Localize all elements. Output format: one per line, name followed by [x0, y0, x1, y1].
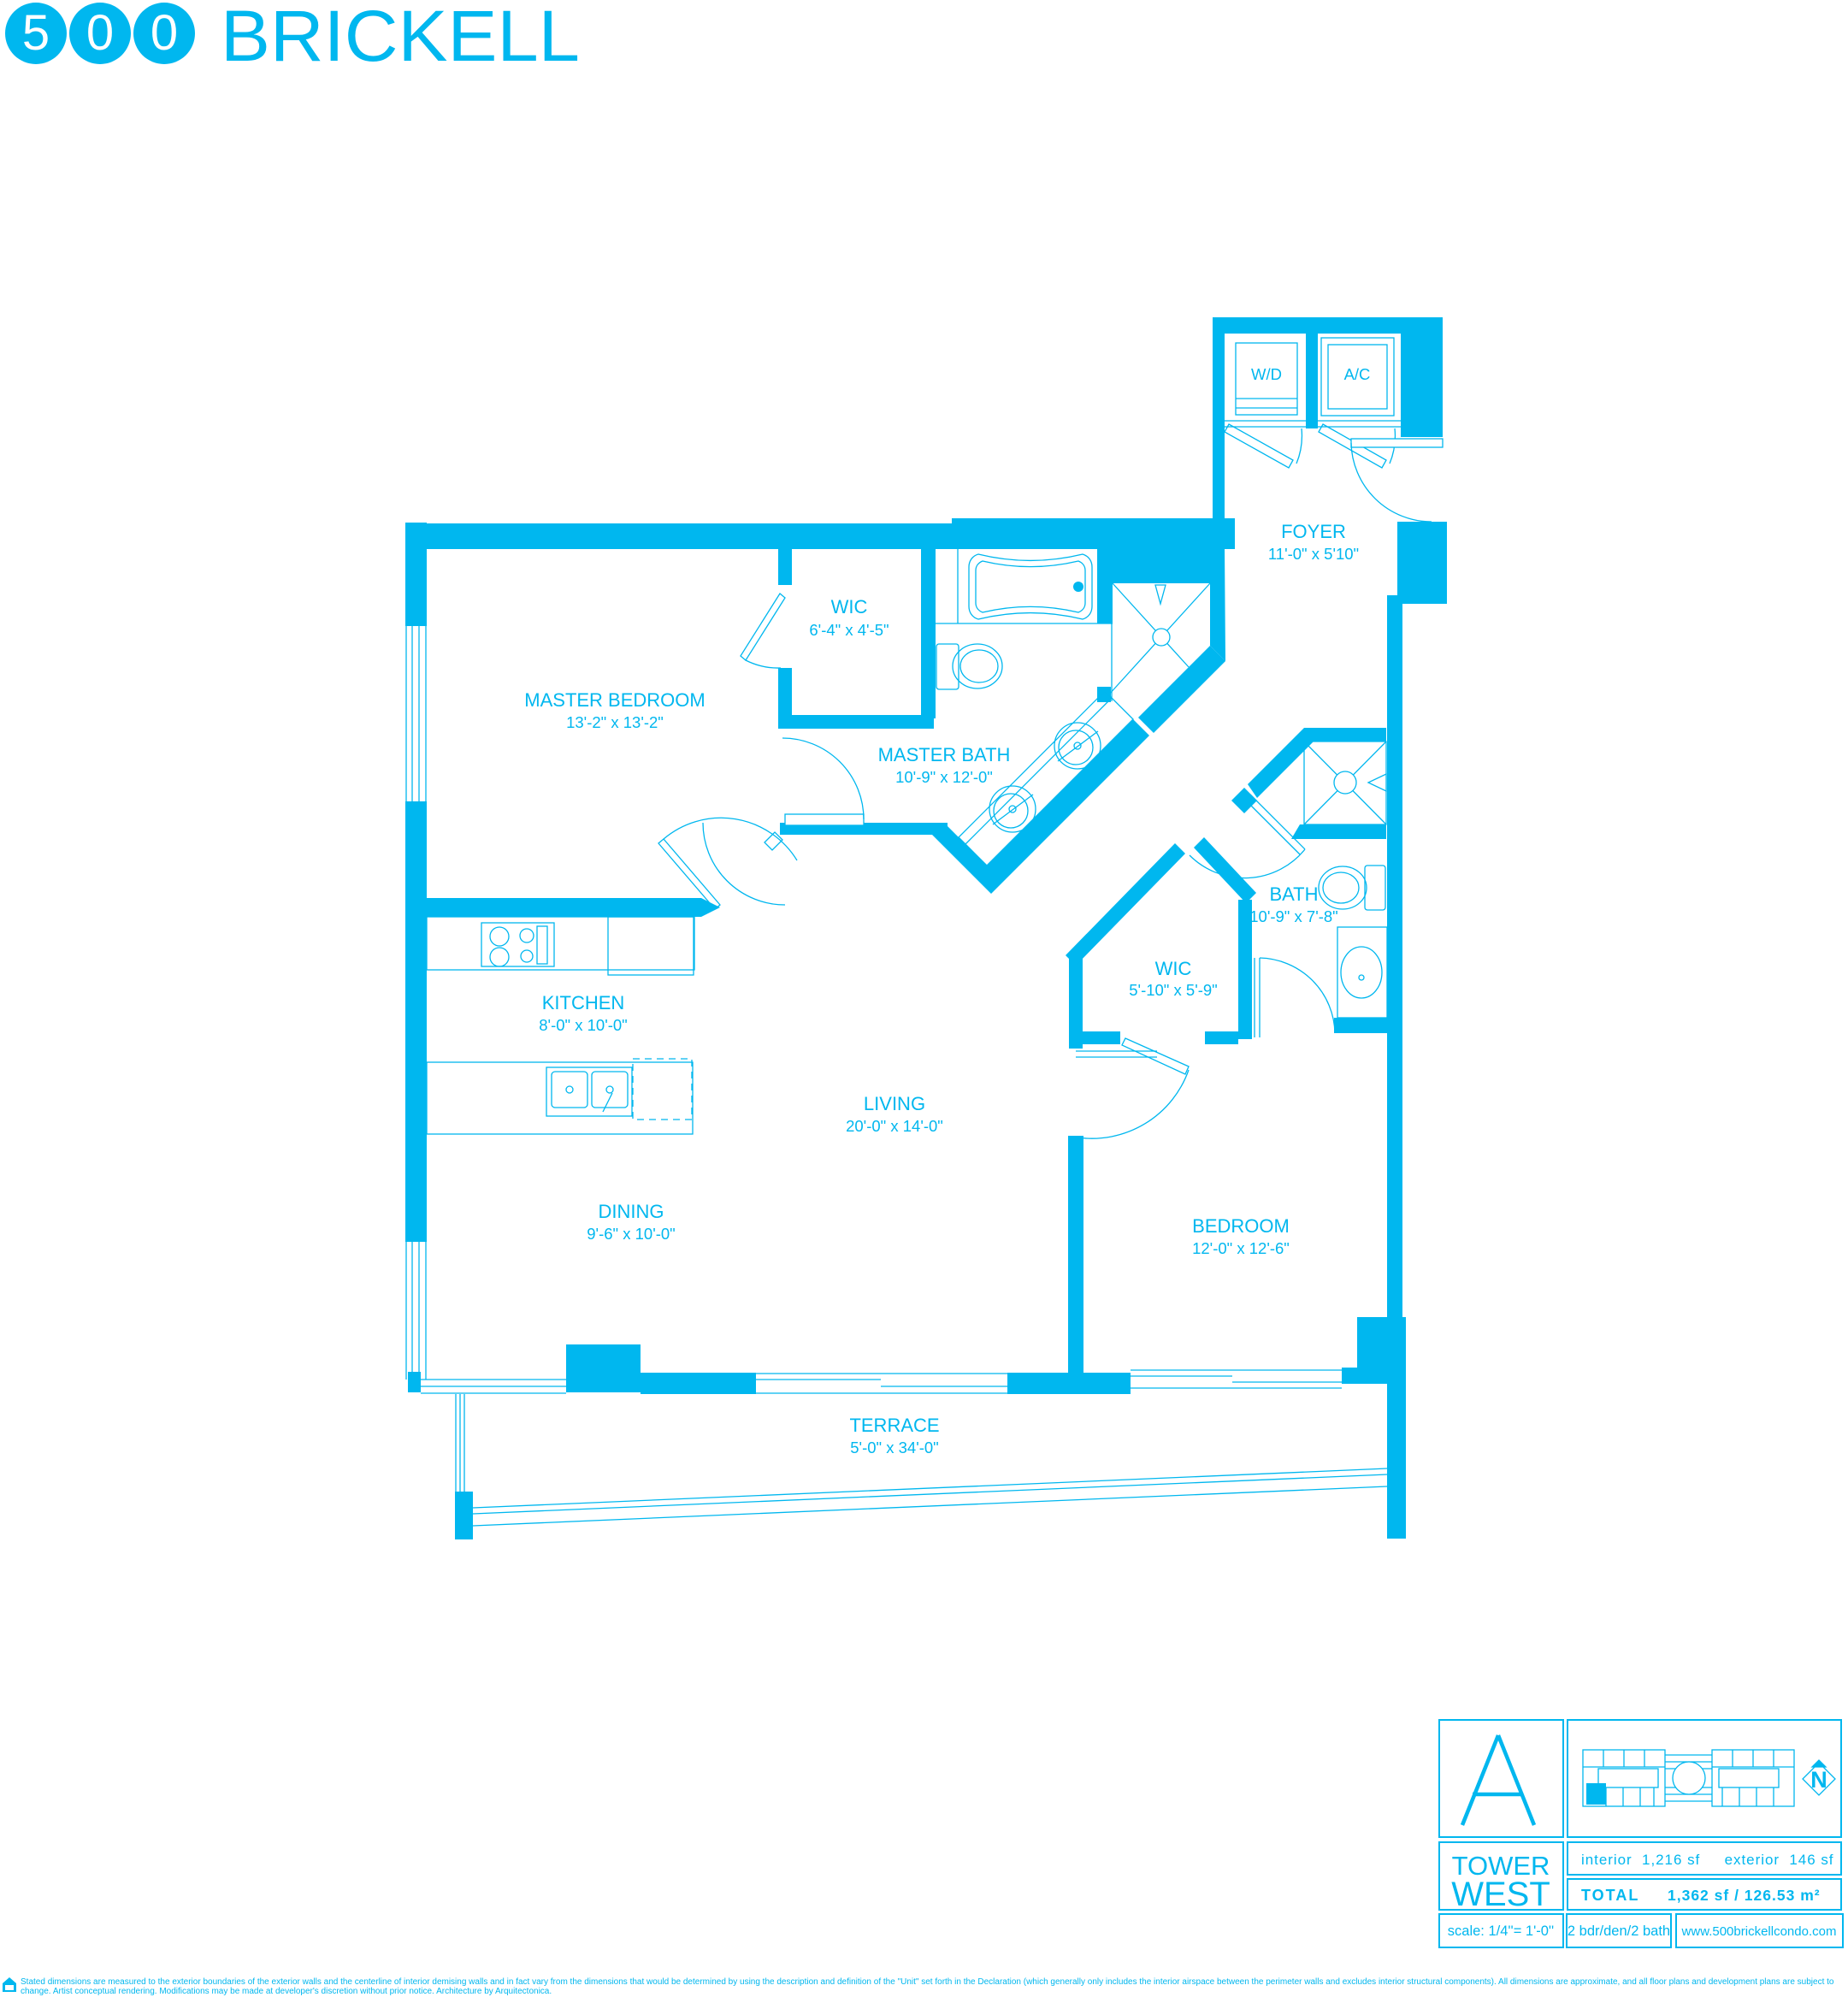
- svg-text:TERRACE: TERRACE: [849, 1415, 939, 1436]
- svg-text:A/C: A/C: [1344, 365, 1371, 383]
- svg-text:1,362 sf / 126.53 m²: 1,362 sf / 126.53 m²: [1668, 1887, 1821, 1904]
- svg-text:change. Artist conceptual rend: change. Artist conceptual rendering. Mod…: [21, 1987, 552, 1996]
- svg-text:MASTER BEDROOM: MASTER BEDROOM: [524, 689, 705, 711]
- svg-text:W/D: W/D: [1251, 365, 1282, 383]
- svg-text:WIC: WIC: [1155, 958, 1192, 979]
- svg-text:KITCHEN: KITCHEN: [542, 992, 625, 1013]
- svg-text:11'-0" x 5'10": 11'-0" x 5'10": [1268, 545, 1359, 563]
- svg-text:9'-6" x 10'-0": 9'-6" x 10'-0": [587, 1225, 676, 1243]
- svg-text:6'-4" x 4'-5": 6'-4" x 4'-5": [809, 621, 889, 639]
- svg-text:BRICKELL: BRICKELL: [221, 0, 580, 76]
- svg-text:0: 0: [151, 5, 178, 61]
- svg-text:LIVING: LIVING: [864, 1093, 925, 1114]
- svg-text:WEST: WEST: [1451, 1876, 1550, 1913]
- svg-text:www.500brickellcondo.com: www.500brickellcondo.com: [1681, 1924, 1837, 1939]
- svg-text:8'-0" x 10'-0": 8'-0" x 10'-0": [539, 1016, 628, 1034]
- svg-text:TOTAL: TOTAL: [1581, 1887, 1639, 1904]
- svg-text:N: N: [1810, 1767, 1827, 1793]
- svg-text:5: 5: [22, 5, 50, 61]
- svg-text:DINING: DINING: [599, 1201, 664, 1222]
- svg-text:10'-9" x 12'-0": 10'-9" x 12'-0": [895, 768, 993, 786]
- svg-text:0: 0: [86, 5, 114, 61]
- svg-text:12'-0" x 12'-6": 12'-0" x 12'-6": [1192, 1239, 1290, 1257]
- svg-text:scale: 1/4''= 1'-0'': scale: 1/4''= 1'-0'': [1448, 1923, 1554, 1939]
- svg-text:BEDROOM: BEDROOM: [1192, 1215, 1290, 1237]
- svg-text:BATH: BATH: [1269, 883, 1318, 905]
- svg-text:20'-0" x 14'-0": 20'-0" x 14'-0": [846, 1117, 943, 1135]
- svg-text:interior 1,216 sf exterio: interior 1,216 sf exterior 146 sf: [1581, 1852, 1834, 1868]
- svg-text:Stated dimensions are measured: Stated dimensions are measured to the ex…: [21, 1977, 1834, 1987]
- svg-text:13'-2" x 13'-2": 13'-2" x 13'-2": [566, 713, 664, 731]
- svg-text:2 bdr/den/2 bath: 2 bdr/den/2 bath: [1568, 1923, 1670, 1939]
- svg-text:WIC: WIC: [831, 596, 868, 617]
- svg-text:FOYER: FOYER: [1281, 521, 1346, 542]
- svg-text:10'-9" x 7'-8": 10'-9" x 7'-8": [1249, 907, 1338, 925]
- svg-text:MASTER BATH: MASTER BATH: [878, 744, 1011, 765]
- svg-text:5'-10" x 5'-9": 5'-10" x 5'-9": [1129, 981, 1218, 999]
- svg-text:5'-0" x 34'-0": 5'-0" x 34'-0": [850, 1439, 939, 1456]
